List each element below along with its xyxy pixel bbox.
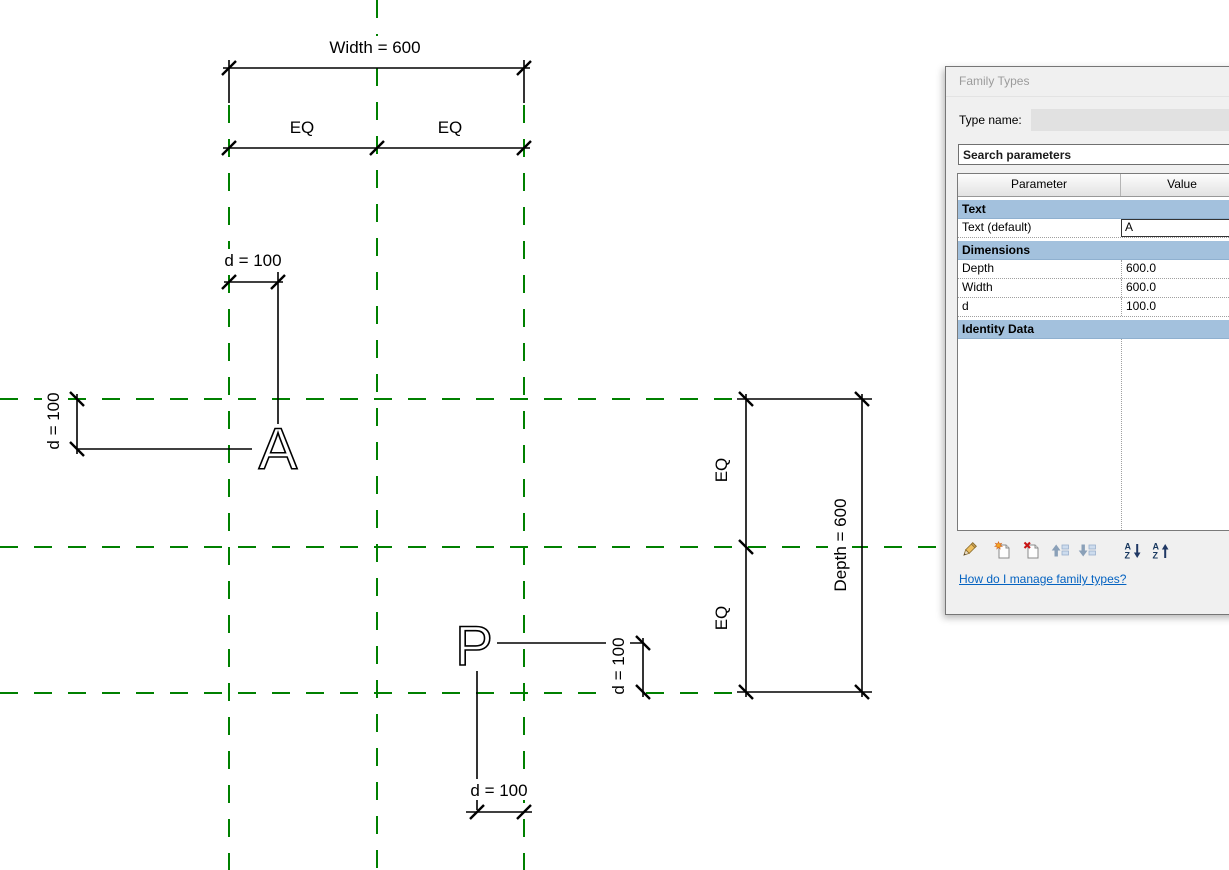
eq-right-lower-label[interactable]: EQ	[712, 606, 731, 631]
help-link[interactable]: How do I manage family types?	[959, 572, 1126, 586]
reference-planes[interactable]	[0, 0, 945, 870]
sort-ascending-icon[interactable]: A Z	[1124, 541, 1143, 560]
d-bottom-dimension-label[interactable]: d = 100	[470, 781, 527, 800]
eq-right-upper-label[interactable]: EQ	[712, 458, 731, 483]
dimension-labels[interactable]: Width = 600 EQ EQ d = 100 d = 100 d = 10…	[44, 38, 850, 800]
model-text-a[interactable]: A	[259, 417, 298, 482]
d-mid-dimension-label[interactable]: d = 100	[609, 637, 628, 694]
table-row[interactable]: d 100.0	[958, 298, 1229, 317]
revit-family-editor: { "drawing": { "colors": { "ref_plane": …	[0, 0, 1229, 870]
table-row[interactable]: Text (default) A	[958, 219, 1229, 238]
move-parameter-up-icon[interactable]	[1051, 541, 1070, 560]
type-name-label: Type name:	[959, 109, 1022, 131]
column-header-parameter[interactable]: Parameter	[958, 174, 1121, 196]
move-parameter-down-icon[interactable]	[1078, 541, 1097, 560]
table-row[interactable]: Width 600.0	[958, 279, 1229, 298]
d-left-dimension-label[interactable]: d = 100	[44, 392, 63, 449]
family-types-dialog: Family Types Type name: Parameter Value …	[945, 66, 1229, 615]
dialog-toolbar: A Z A Z	[955, 541, 1171, 560]
delete-parameter-icon[interactable]	[1023, 541, 1042, 560]
parameter-table: Parameter Value Text Text (default) A Di…	[957, 173, 1229, 531]
width-dimension-label[interactable]: Width = 600	[329, 38, 420, 57]
sort-descending-icon[interactable]: A Z	[1152, 541, 1171, 560]
type-name-input[interactable]	[1031, 109, 1229, 131]
search-parameters-input[interactable]	[958, 144, 1229, 165]
parameter-name[interactable]: d	[958, 298, 1121, 316]
dimension-ticks	[70, 61, 869, 819]
parameter-value[interactable]: A	[1121, 219, 1229, 237]
parameter-name[interactable]: Depth	[958, 260, 1121, 278]
edit-parameter-icon[interactable]	[959, 541, 978, 560]
type-name-row: Type name:	[946, 109, 1229, 131]
d-top-dimension-label[interactable]: d = 100	[224, 251, 281, 270]
parameter-table-header: Parameter Value	[958, 174, 1229, 197]
parameter-value[interactable]: 100.0	[1121, 298, 1229, 316]
drawing-canvas[interactable]: Width = 600 EQ EQ d = 100 d = 100 d = 10…	[0, 0, 945, 870]
dialog-title: Family Types	[946, 67, 1229, 97]
svg-text:Z: Z	[1153, 551, 1159, 561]
eq-top-right-label[interactable]: EQ	[438, 118, 463, 137]
table-row[interactable]: Depth 600.0	[958, 260, 1229, 279]
parameter-value[interactable]: 600.0	[1121, 279, 1229, 297]
parameter-name[interactable]: Text (default)	[958, 219, 1121, 237]
depth-dimension-label[interactable]: Depth = 600	[831, 498, 850, 591]
model-text-p[interactable]: P	[455, 614, 492, 677]
new-parameter-icon[interactable]	[994, 541, 1013, 560]
category-row-identity-data[interactable]: Identity Data	[958, 320, 1229, 339]
parameter-name[interactable]: Width	[958, 279, 1121, 297]
table-empty-area	[958, 339, 1229, 530]
parameter-value[interactable]: 600.0	[1121, 260, 1229, 278]
eq-top-left-label[interactable]: EQ	[290, 118, 315, 137]
svg-text:Z: Z	[1125, 551, 1131, 561]
text-masks	[42, 36, 852, 800]
column-header-value[interactable]: Value	[1121, 174, 1229, 196]
value-edit-box[interactable]: A	[1121, 219, 1229, 237]
category-row-text[interactable]: Text	[958, 200, 1229, 219]
category-row-dimensions[interactable]: Dimensions	[958, 241, 1229, 260]
